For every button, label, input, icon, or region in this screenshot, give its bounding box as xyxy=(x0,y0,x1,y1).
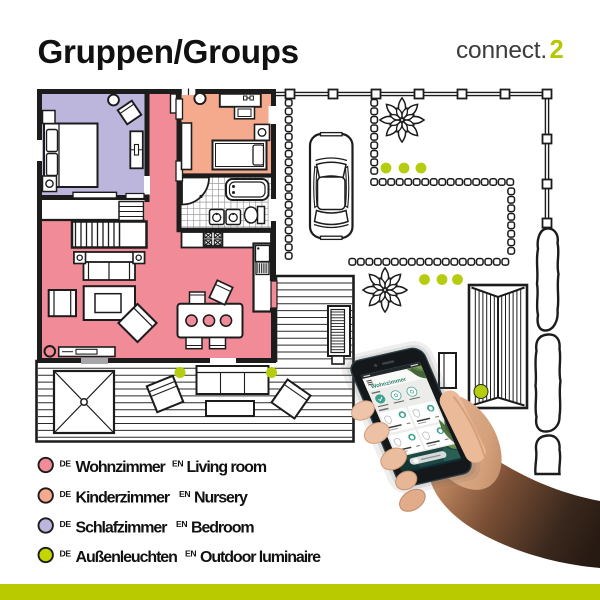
svg-text:Kinderzimmer: Kinderzimmer xyxy=(76,490,170,507)
svg-text:DE: DE xyxy=(60,489,72,499)
svg-text:Living room: Living room xyxy=(187,459,267,476)
svg-text:Nursery: Nursery xyxy=(194,490,248,507)
svg-text:Schlafzimmer: Schlafzimmer xyxy=(76,520,168,537)
svg-text:DE: DE xyxy=(60,519,72,529)
svg-text:DE: DE xyxy=(60,459,72,469)
svg-text:Außenleuchten: Außenleuchten xyxy=(76,549,178,566)
svg-text:Gruppen/Groups: Gruppen/Groups xyxy=(38,34,299,71)
svg-text:EN: EN xyxy=(176,519,187,529)
svg-text:EN: EN xyxy=(179,489,190,499)
svg-text:Outdoor luminaire: Outdoor luminaire xyxy=(200,549,321,566)
svg-text:2: 2 xyxy=(550,36,564,64)
svg-text:EN: EN xyxy=(172,459,183,469)
svg-text:DE: DE xyxy=(60,549,72,559)
svg-text:connect.: connect. xyxy=(456,37,547,64)
svg-text:EN: EN xyxy=(185,549,196,559)
svg-text:Bedroom: Bedroom xyxy=(191,520,254,537)
svg-text:Wohnzimmer: Wohnzimmer xyxy=(76,459,166,476)
